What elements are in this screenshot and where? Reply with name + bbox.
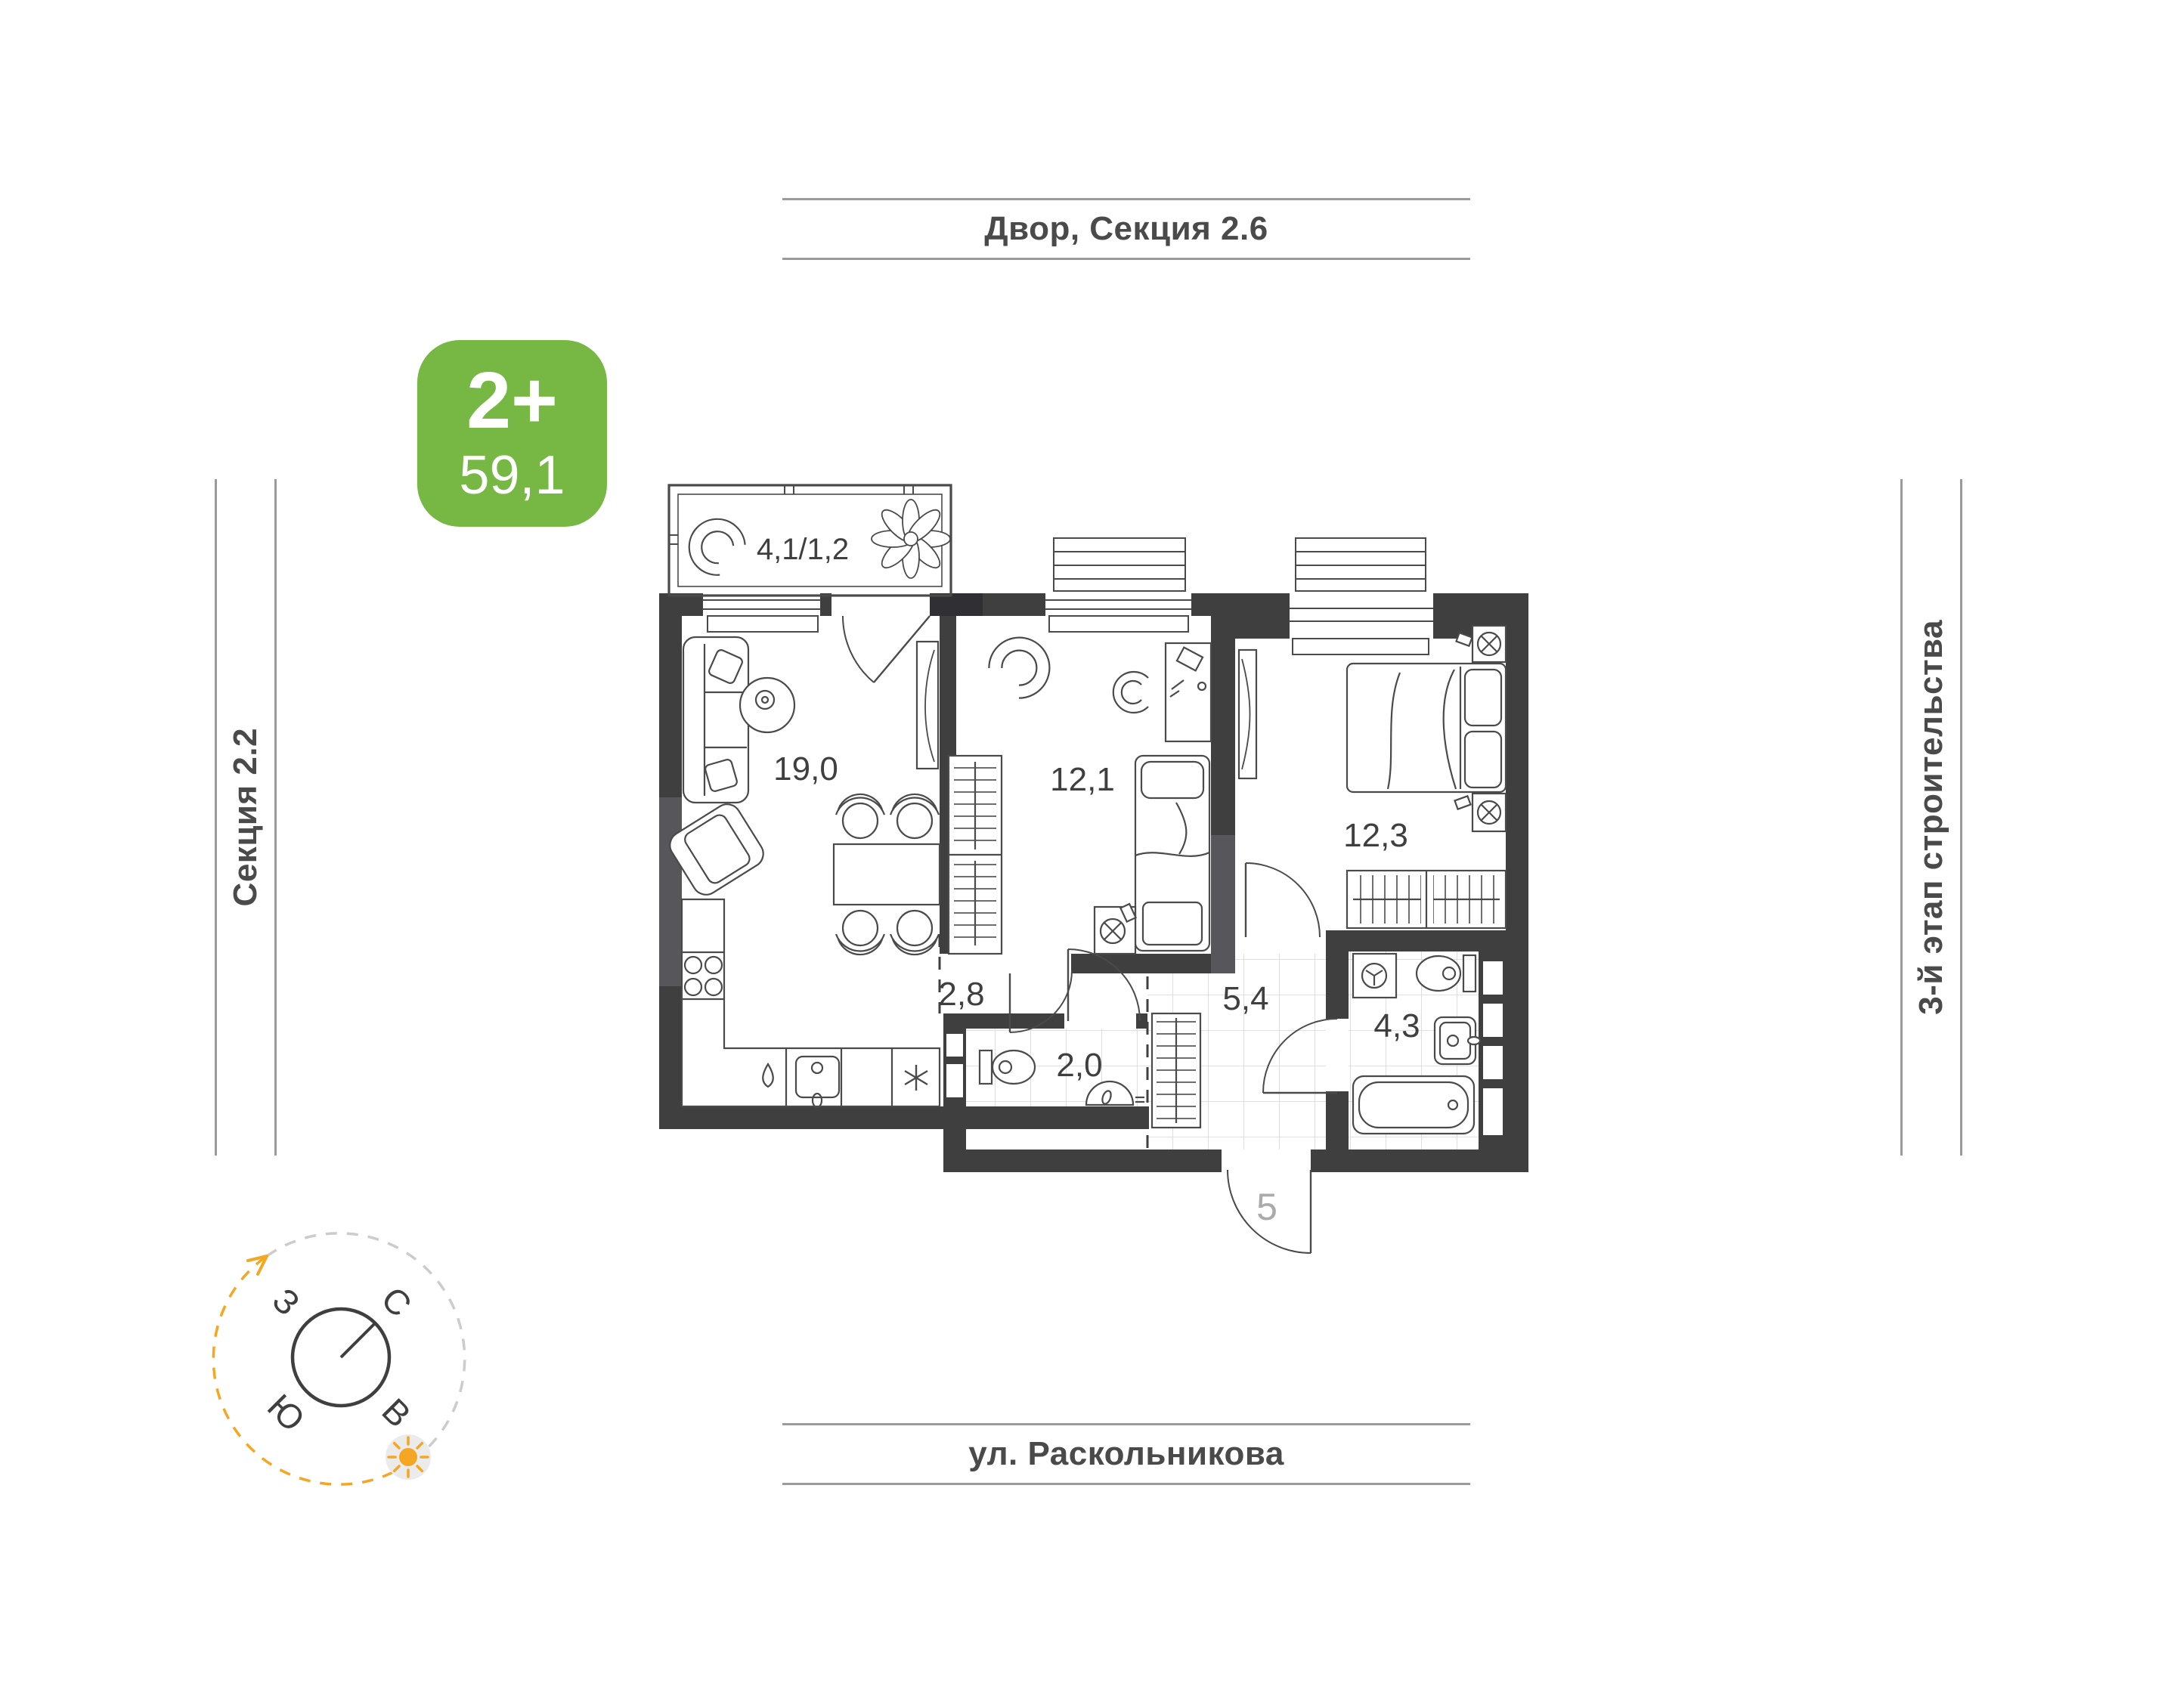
room-area-balcony: 4,1/1,2 bbox=[757, 533, 849, 566]
room-area-bathroom: 4,3 bbox=[1373, 1007, 1420, 1044]
apartment-number: 5 bbox=[1256, 1186, 1277, 1228]
bathroom-toilet bbox=[1417, 955, 1476, 992]
floorplan-page: Двор, Секция 2.6 ул. Раскольникова Секци… bbox=[0, 0, 2177, 1708]
double-bed bbox=[1347, 664, 1506, 792]
plant-icon bbox=[872, 500, 950, 578]
window-sill bbox=[1049, 616, 1188, 632]
room-area-bedroom2: 12,3 bbox=[1343, 817, 1408, 854]
room-area-hall: 2,8 bbox=[938, 976, 984, 1013]
sun-icon bbox=[386, 1434, 431, 1480]
desk bbox=[1166, 643, 1211, 741]
floorplan-drawing: 4,1/1,2 19,0 12,1 12,3 2,8 5,4 2,0 4,3 5… bbox=[0, 0, 2177, 1708]
room-area-bedroom1: 12,1 bbox=[1050, 761, 1115, 798]
single-bed bbox=[1135, 756, 1209, 951]
wc-toilet bbox=[980, 1050, 1035, 1084]
compass-west: З bbox=[265, 1280, 307, 1323]
window-sill bbox=[708, 616, 818, 632]
bathtub bbox=[1353, 1076, 1474, 1134]
window-sill bbox=[1293, 639, 1429, 654]
radiator bbox=[1054, 538, 1185, 591]
bedroom2-nightstand bbox=[1454, 794, 1506, 831]
compass: З С Ю В bbox=[213, 1233, 464, 1484]
bedroom1-wardrobe bbox=[949, 756, 1002, 954]
room-area-corridor: 5,4 bbox=[1222, 980, 1268, 1017]
compass-north: С bbox=[374, 1279, 420, 1324]
room-area-living: 19,0 bbox=[773, 750, 838, 787]
balcony-chair bbox=[678, 508, 751, 581]
bedroom2-wardrobe bbox=[1347, 871, 1506, 928]
room-area-wc: 2,0 bbox=[1056, 1047, 1102, 1084]
desk-chair bbox=[1113, 672, 1148, 713]
radiator bbox=[1296, 538, 1426, 591]
compass-south: Ю bbox=[260, 1386, 313, 1439]
compass-east: В bbox=[374, 1391, 418, 1434]
coat-closet bbox=[1152, 1013, 1200, 1128]
bedroom1-nightstand bbox=[1095, 904, 1136, 954]
coffee-table bbox=[740, 678, 794, 732]
dining-table bbox=[834, 794, 940, 955]
bedroom1-armchair bbox=[983, 625, 1062, 704]
bathroom-sink bbox=[1435, 1017, 1480, 1064]
bedroom2-door bbox=[1246, 863, 1320, 937]
sofa bbox=[683, 637, 748, 803]
bedroom2-mirror-cabinet bbox=[1239, 650, 1256, 778]
living-cabinet bbox=[917, 642, 938, 769]
washing-machine bbox=[1353, 954, 1396, 998]
